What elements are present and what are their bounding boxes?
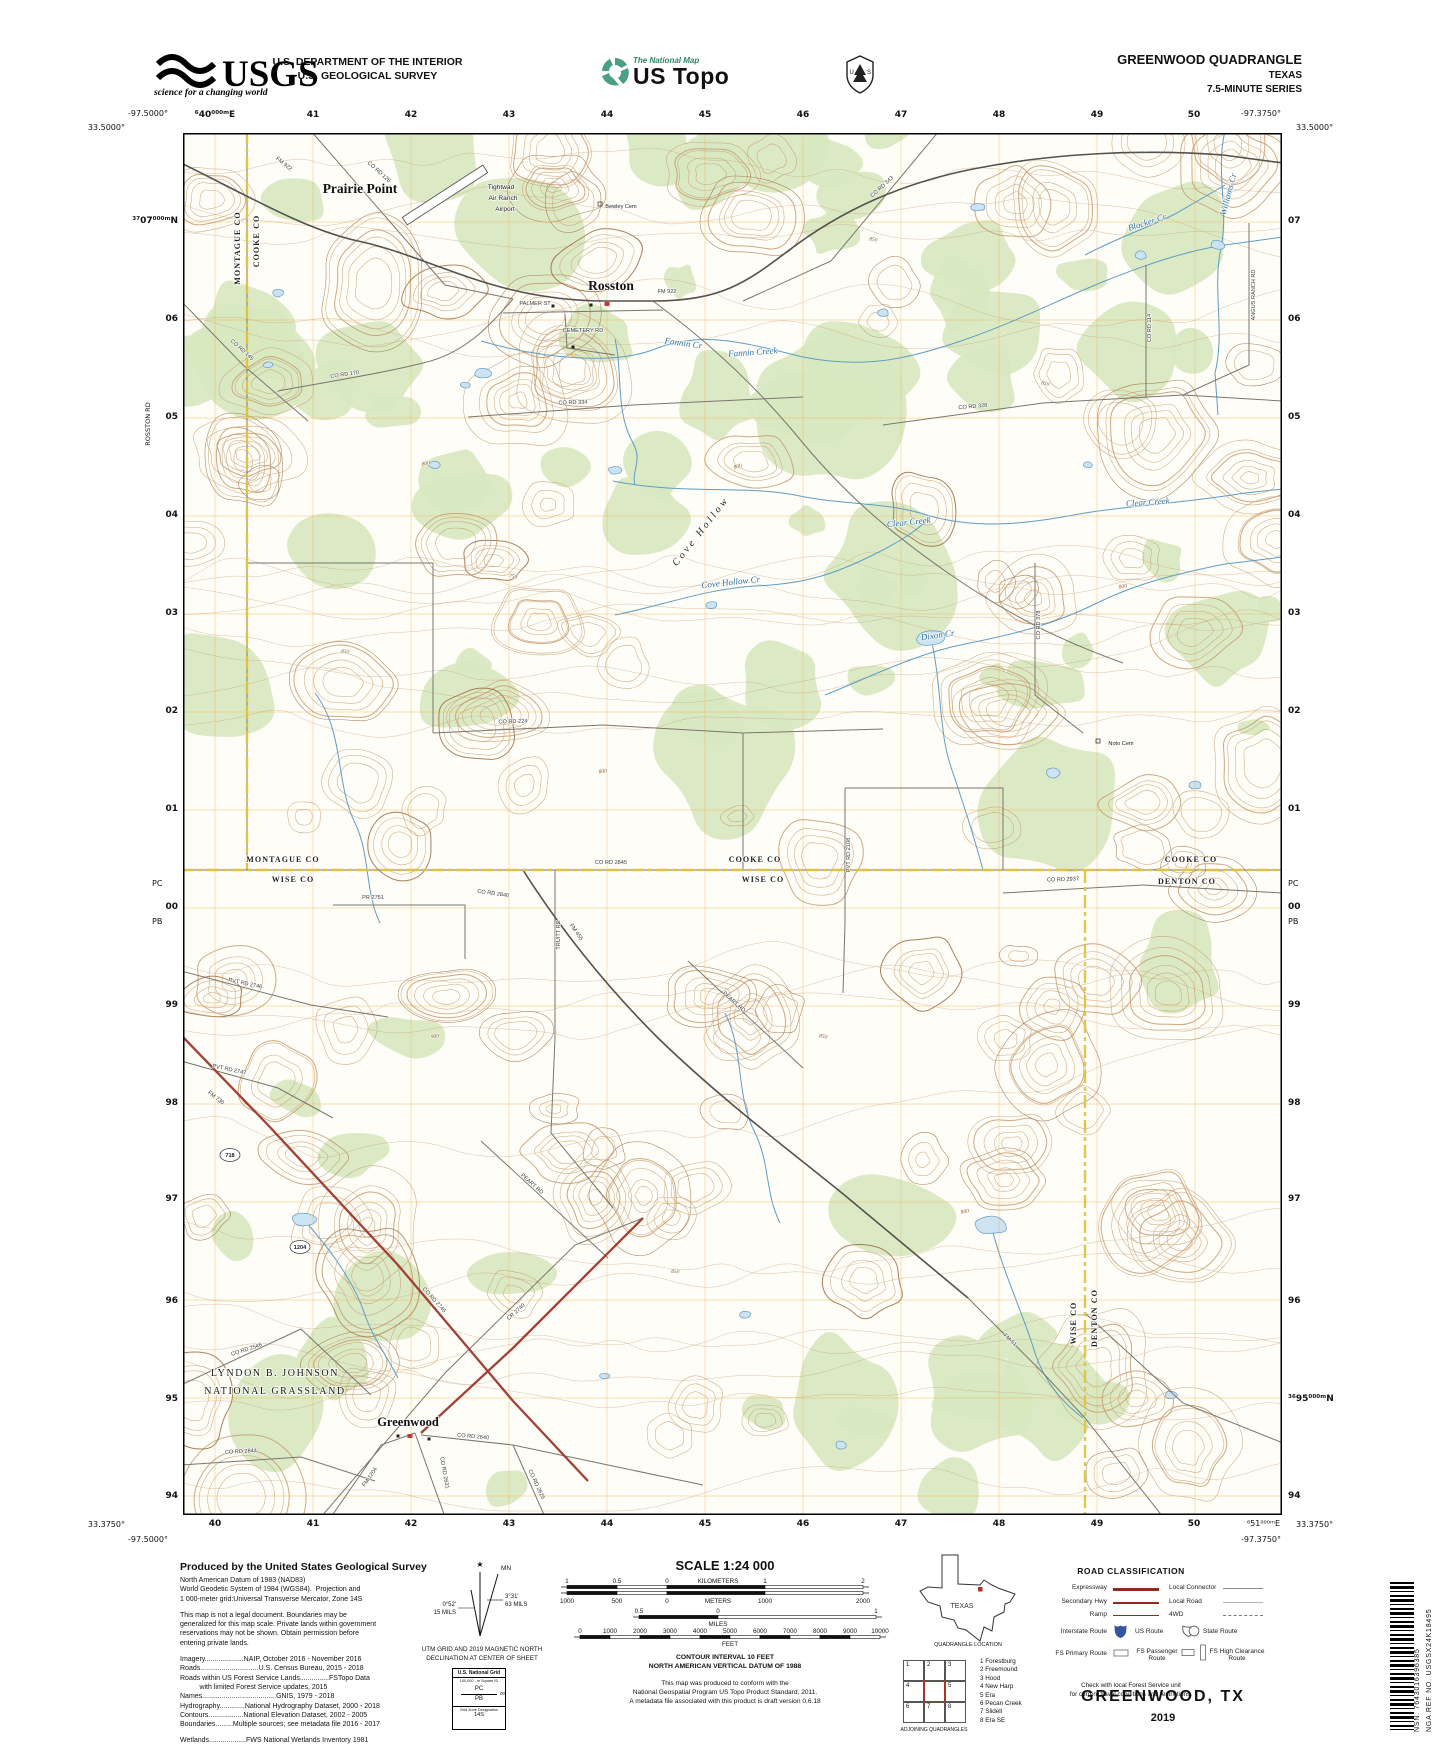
scale-tick-label: 4000 <box>693 1628 708 1635</box>
scale-tick-label: 1 <box>874 1608 878 1615</box>
conformance-note: National Geospatial Program US Topo Prod… <box>528 1689 922 1696</box>
road-label: CO RD 378 <box>1036 611 1042 640</box>
natgrid-zone: 14S <box>453 1712 505 1718</box>
natgrid-square-id: PC <box>461 1685 497 1694</box>
pond <box>971 204 985 211</box>
cemetery-label: Bewley Cem <box>605 204 637 210</box>
grid-easting-label: 50 <box>1188 110 1201 120</box>
department-heading: U.S. DEPARTMENT OF THE INTERIOR U.S. GEO… <box>255 55 480 83</box>
grid-northing-label: 06 <box>1288 314 1301 324</box>
site-label: Airport <box>495 206 515 213</box>
building-symbol <box>552 305 555 308</box>
contour-elevation-label: 900 <box>430 1034 439 1041</box>
scale-tick-label: 0 <box>716 1608 720 1615</box>
scale-tick-label: 1000 <box>603 1628 618 1635</box>
grid-easting-label: 47 <box>895 110 908 120</box>
grid-declination-mils: 15 MILS <box>434 1610 456 1616</box>
natgrid-subtitle: 100,000 - m Square ID <box>453 1678 505 1683</box>
scale-tick-label: 1 <box>565 1578 569 1585</box>
grid-northing-label: ³⁷07⁰⁰⁰ᵐN <box>108 216 178 226</box>
county-label: DENTON CO <box>1090 1289 1099 1347</box>
route-shield-label: 1204 <box>294 1245 307 1251</box>
scale-bar-part <box>617 1591 667 1594</box>
grid-northing-label: 05 <box>1288 412 1301 422</box>
contour-elevation-label: 750 <box>509 573 518 580</box>
scale-unit-label: FEET <box>722 1641 738 1648</box>
scale-bar-part <box>610 1635 640 1638</box>
dept-line2: U.S. GEOLOGICAL SURVEY <box>255 69 480 83</box>
scale-tick-label: 9000 <box>843 1628 858 1635</box>
corner-latitude: 33.3750° <box>62 1520 125 1529</box>
grid-easting-label: 49 <box>1091 110 1104 120</box>
corner-latitude: 33.3750° <box>1296 1520 1333 1529</box>
us-topo-title: US Topo <box>633 65 729 88</box>
credit-line: Hydrography.............National Hydrogr… <box>180 1702 452 1711</box>
building-symbol <box>572 346 575 349</box>
scale-tick-label: 2000 <box>633 1628 648 1635</box>
adjoining-quad-cell: 5 <box>945 1681 966 1702</box>
current-quad-cell <box>924 1681 945 1702</box>
corner-longitude: -97.5000° <box>128 109 168 118</box>
adjoining-quad-cell: 8 <box>945 1702 966 1723</box>
scale-bar-part <box>718 1615 876 1618</box>
road-classification-legend: ROAD CLASSIFICATION Check with local For… <box>995 1560 1267 1735</box>
adjoining-quad-cell: 1 <box>903 1660 924 1681</box>
map-sheet-year: 2019 <box>1028 1712 1298 1724</box>
scale-bar-part <box>580 1635 610 1638</box>
legend-label: Local Road <box>1169 1598 1221 1605</box>
usgs-topo-sheet: USGS science for a changing world U.S. D… <box>0 0 1445 1746</box>
grid-easting-label: 49 <box>1091 1519 1104 1529</box>
legend-line-sample <box>1223 1602 1263 1603</box>
county-label: WISE CO <box>742 875 785 884</box>
grid-easting-label: 41 <box>307 1519 320 1529</box>
grid-easting-label: 48 <box>993 1519 1006 1529</box>
pond <box>740 1311 751 1318</box>
scale-tick-label: 1000 <box>758 1598 773 1605</box>
grid-northing-label: 97 <box>1288 1194 1301 1204</box>
grid-northing-label: 02 <box>108 706 178 716</box>
legend-line-sample <box>1113 1588 1159 1591</box>
legend-label: Secondary Hwy <box>995 1598 1107 1605</box>
legend-label: Expressway <box>995 1584 1107 1591</box>
pond <box>1135 251 1146 259</box>
scale-bar-part <box>790 1635 820 1638</box>
grid-northing-label: 04 <box>1288 510 1301 520</box>
road-label: CO RD 334 <box>558 399 587 406</box>
road-classification-title: ROAD CLASSIFICATION <box>995 1566 1267 1576</box>
grid-declination-degrees: 0°52' <box>442 1602 456 1608</box>
scale-bar-part <box>820 1635 850 1638</box>
grid-northing-label: 99 <box>108 1000 178 1010</box>
legend-label: FS Primary Route <box>1025 1650 1107 1657</box>
magnetic-north-label: MN <box>501 1565 511 1572</box>
grid-northing-label: 97 <box>108 1194 178 1204</box>
legend-label: Ramp <box>995 1611 1107 1618</box>
legend-label: US Route <box>1135 1628 1175 1635</box>
scale-title: SCALE 1:24 000 <box>560 1558 890 1573</box>
vertical-datum: NORTH AMERICAN VERTICAL DATUM OF 1988 <box>558 1663 892 1670</box>
corner-longitude: -97.3750° <box>1225 1535 1281 1544</box>
scale-tick-label: 0.5 <box>635 1608 644 1615</box>
grid-northing-label: 98 <box>108 1098 178 1108</box>
grid-square-label: PC <box>1288 879 1298 888</box>
grid-northing-label: 04 <box>108 510 178 520</box>
declination-caption: DECLINATION AT CENTER OF SHEET <box>392 1655 572 1662</box>
adjoining-quadrangle-grid: 12345678 <box>903 1660 966 1723</box>
margin-road-label: ROSSTON RD <box>144 384 152 464</box>
area-label: NATIONAL GRASSLAND <box>204 1386 346 1397</box>
pond <box>600 1373 610 1378</box>
quad-location-marker <box>978 1587 983 1592</box>
county-label: COOKE CO <box>729 855 782 864</box>
scale-bar-part <box>640 1635 670 1638</box>
grid-easting-label: 43 <box>503 110 516 120</box>
area-label: LYNDON B. JOHNSON <box>211 1368 339 1379</box>
map-content: 7181204Prairie PointRosstonGreenwoodLYND… <box>183 133 1282 1515</box>
scale-unit-label: METERS <box>705 1598 731 1605</box>
us-national-grid-box: U.S. National Grid 100,000 - m Square ID… <box>452 1668 506 1730</box>
pond <box>608 466 622 474</box>
contour-elevation-label: 800 <box>960 1208 969 1215</box>
grid-northing-label: ³⁶95⁰⁰⁰ᵐN <box>1288 1394 1334 1404</box>
natgrid-title: U.S. National Grid <box>453 1669 505 1678</box>
fs-high-clearance-route-icon <box>1199 1644 1207 1663</box>
adjoining-quadrangles-caption: ADJOINING QUADRANGLES <box>878 1727 990 1733</box>
grid-northing-label: 01 <box>1288 804 1301 814</box>
grid-northing-label: 06 <box>108 314 178 324</box>
true-north-star-icon: ★ <box>476 1560 483 1569</box>
contour-elevation-label: 850 <box>341 649 350 656</box>
magnetic-declination-mils: 63 MILS <box>505 1602 527 1608</box>
conformance-note: This map was produced to conform with th… <box>528 1680 922 1687</box>
scale-bar-part <box>667 1591 765 1594</box>
adjoining-quad-cell: 2 <box>924 1660 945 1681</box>
state-route-circle-icon <box>1188 1625 1200 1639</box>
credit-line: reservations may not be shown. Obtain pe… <box>180 1629 452 1638</box>
credit-line: Names...................................… <box>180 1692 452 1701</box>
grid-easting-label: ⁶51⁰⁰⁰ᵐE <box>1180 1519 1280 1528</box>
contour-elevation-label: 800 <box>1118 583 1127 590</box>
map-sheet-name: GREENWOOD, TX <box>1028 1688 1298 1706</box>
credit-line: Wetlands...................FWS National … <box>180 1736 452 1745</box>
scale-tick-label: 0 <box>665 1578 669 1585</box>
scale-tick-label: 0 <box>665 1598 669 1605</box>
credit-line: Contours..................National Eleva… <box>180 1711 452 1720</box>
declination-diagram: ★ MN 0°52' 15 MILS 3°31' 63 MILS <box>425 1556 535 1642</box>
scale-bar-part <box>670 1635 700 1638</box>
grid-easting-label: 42 <box>405 1519 418 1529</box>
quad-name: GREENWOOD QUADRANGLE <box>990 52 1302 67</box>
grid-northing-label: 94 <box>108 1491 178 1501</box>
town-label: Greenwood <box>377 1415 439 1429</box>
natgrid-square-id: PB <box>461 1695 497 1704</box>
scale-bar-part <box>850 1635 880 1638</box>
pond <box>475 368 492 378</box>
interstate-shield-icon <box>1113 1624 1128 1641</box>
credit-line: Produced by the United States Geological… <box>180 1560 452 1574</box>
scale-tick-label: 0 <box>578 1628 582 1635</box>
scale-bar-part <box>700 1635 730 1638</box>
credit-line: with limited Forest Service updates, 201… <box>180 1683 452 1692</box>
grid-northing-label: 00 <box>108 902 178 912</box>
grid-northing-label: 00 <box>1288 902 1301 912</box>
road-label: CO RD 224 <box>498 718 527 725</box>
scale-tick-label: 5000 <box>723 1628 738 1635</box>
corner-latitude: 33.5000° <box>62 123 125 132</box>
state-label: TEXAS <box>951 1603 974 1610</box>
grid-easting-label: 45 <box>699 110 712 120</box>
credit-line: This map is not a legal document. Bounda… <box>180 1611 452 1620</box>
grid-easting-label: 48 <box>993 110 1006 120</box>
scale-bar-part <box>765 1585 863 1588</box>
conformance-note: A metadata file associated with this pro… <box>528 1698 922 1705</box>
credit-line: Roads..............................U.S. … <box>180 1664 452 1673</box>
usgs-tagline: science for a changing world <box>154 88 267 98</box>
road-label: PR 2751 <box>362 895 384 901</box>
scale-tick-label: 7000 <box>783 1628 798 1635</box>
scale-tick-label: 2 <box>861 1578 865 1585</box>
quad-state: TEXAS <box>990 70 1302 81</box>
barcode <box>1390 1582 1414 1730</box>
pond <box>706 602 717 609</box>
legend-line-sample <box>1223 1588 1263 1589</box>
grid-northing-label: 07 <box>1288 216 1301 226</box>
adjoining-quad-cell: 4 <box>903 1681 924 1702</box>
legend-label: 4WD <box>1169 1611 1221 1618</box>
fs-passenger-route-icon <box>1181 1648 1195 1659</box>
credit-line: World Geodetic System of 1984 (WGS84). P… <box>180 1585 452 1594</box>
grid-square-label: PC <box>152 879 162 888</box>
scale-tick-label: 2000 <box>856 1598 871 1605</box>
national-map-logo: The National Map US Topo <box>597 54 767 90</box>
building-symbol <box>428 1438 431 1441</box>
grid-easting-label: 46 <box>797 1519 810 1529</box>
fs-badge-letter: S <box>867 70 871 76</box>
legend-label: State Route <box>1203 1628 1253 1635</box>
topo-map: 7181204Prairie PointRosstonGreenwoodLYND… <box>183 133 1282 1515</box>
county-label: DENTON CO <box>1158 877 1216 886</box>
national-map-icon <box>597 54 633 90</box>
legend-label: FS Passenger Route <box>1135 1648 1179 1663</box>
building-symbol <box>397 1435 400 1438</box>
road-label: CO RD 2937 <box>1047 876 1079 883</box>
dept-line1: U.S. DEPARTMENT OF THE INTERIOR <box>255 55 480 69</box>
grid-northing-label: 05 <box>108 412 178 422</box>
grid-northing-label: 95 <box>108 1394 178 1404</box>
scale-bar-part <box>730 1635 760 1638</box>
county-label: COOKE CO <box>1165 855 1218 864</box>
credit-line: Roads within US Forest Service Lands....… <box>180 1674 452 1683</box>
credit-line: 1 000-meter grid:Universal Transverse Me… <box>180 1595 452 1604</box>
building-symbol <box>605 302 610 306</box>
grid-square-label: PB <box>152 917 162 926</box>
grid-easting-label: 45 <box>699 1519 712 1529</box>
county-label: MONTAGUE CO <box>246 855 320 864</box>
grid-easting-label: 42 <box>405 110 418 120</box>
grid-northing-label: 03 <box>108 608 178 618</box>
scale-bar-part <box>667 1585 765 1588</box>
credit-line: Boundaries.........Multiple sources; see… <box>180 1720 452 1729</box>
scale-tick-label: 0.5 <box>613 1578 622 1585</box>
quad-series: 7.5-MINUTE SERIES <box>990 84 1302 95</box>
scale-bar-part <box>639 1615 718 1618</box>
scale-tick-label: 1 <box>763 1578 767 1585</box>
county-label: WISE CO <box>1069 1302 1078 1345</box>
grid-northing-label: 94 <box>1288 1491 1301 1501</box>
grid-easting-label: 47 <box>895 1519 908 1529</box>
magnetic-declination-degrees: 3°31' <box>505 1594 519 1600</box>
site-label: Tightwad <box>488 184 515 191</box>
legend-label: Interstate Route <box>1025 1628 1107 1635</box>
scale-tick-label: 8000 <box>813 1628 828 1635</box>
grid-easting-label: 44 <box>601 110 614 120</box>
road-label: ANGUS RANCH RD <box>1251 270 1257 321</box>
adjoining-quad-cell: 3 <box>945 1660 966 1681</box>
county-label: COOKE CO <box>252 215 261 268</box>
road-label: CO RD 114 <box>1147 314 1153 343</box>
scale-tick-label: 500 <box>612 1598 623 1605</box>
grid-easting-label: 43 <box>503 1519 516 1529</box>
state-route-circle-icon <box>1191 1640 1192 1647</box>
road-label: PALMER ST <box>519 301 551 307</box>
building-symbol <box>590 304 593 307</box>
pond <box>429 461 440 468</box>
road-label: CO RD 2845 <box>595 860 627 866</box>
adjoining-quad-cell: 7 <box>924 1702 945 1723</box>
fs-badge-letter: U <box>850 70 854 76</box>
corner-latitude: 33.5000° <box>1296 123 1333 132</box>
contour-interval: CONTOUR INTERVAL 10 FEET <box>558 1654 892 1661</box>
scale-bar-part <box>567 1591 617 1594</box>
road-label: CEMETERY RD <box>563 328 604 334</box>
contour-elevation-label: 850 <box>671 1269 680 1276</box>
county-label: MONTAGUE CO <box>233 211 242 285</box>
road-label: PVT RD 2108 <box>846 838 852 872</box>
grid-northing-label: 02 <box>1288 706 1301 716</box>
adjoining-quad-cell: 6 <box>903 1702 924 1723</box>
scale-unit-label: MILES <box>709 1621 728 1628</box>
credit-line: generalized for this map scale. Private … <box>180 1620 452 1629</box>
scale-tick-label: 1000 <box>560 1598 575 1605</box>
scale-bar-part <box>617 1585 667 1588</box>
legend-line-sample <box>1113 1602 1159 1604</box>
grid-easting-label: 46 <box>797 110 810 120</box>
declination-caption: UTM GRID AND 2019 MAGNETIC NORTH <box>392 1646 572 1653</box>
nga-ref-number: NGA REF NO. USGSX24K18495 <box>1426 1556 1433 1732</box>
forest-service-badge: U S <box>845 55 875 95</box>
grid-northing-label: 03 <box>1288 608 1301 618</box>
fs-primary-route-icon <box>1113 1648 1129 1660</box>
scale-bar-part <box>567 1585 617 1588</box>
grid-easting-label: 44 <box>601 1519 614 1529</box>
grid-easting-label: 41 <box>307 110 320 120</box>
cemetery-label: Noto Cem <box>1108 741 1134 747</box>
legend-label: Local Connector <box>1169 1584 1221 1591</box>
natgrid-corner: 00 <box>500 1691 505 1696</box>
contour-elevation-label: 850 <box>819 1033 828 1040</box>
grid-northing-label: 98 <box>1288 1098 1301 1108</box>
corner-longitude: -97.3750° <box>1225 109 1281 118</box>
grid-easting-label: 40 <box>209 1519 222 1529</box>
building-symbol <box>408 1434 413 1438</box>
town-label: Rosston <box>588 278 634 293</box>
scale-bar-part <box>760 1635 790 1638</box>
legend-line-sample <box>1223 1615 1263 1616</box>
grid-northing-label: 96 <box>108 1296 178 1306</box>
site-label: Air Ranch <box>489 195 518 202</box>
road-label: FM 922 <box>658 289 677 295</box>
corner-longitude: -97.5000° <box>128 1535 168 1544</box>
contour-elevation-label: 850 <box>869 236 878 243</box>
scale-tick-label: 3000 <box>663 1628 678 1635</box>
scale-tick-label: 10000 <box>871 1628 889 1635</box>
grid-northing-label: 99 <box>1288 1000 1301 1010</box>
quad-title-block: GREENWOOD QUADRANGLE TEXAS 7.5-MINUTE SE… <box>990 52 1302 95</box>
legend-label: FS High Clearance Route <box>1209 1648 1265 1663</box>
grid-easting-label: ⁶40⁰⁰⁰ᵐE <box>195 110 235 120</box>
legend-line-sample <box>1113 1615 1159 1616</box>
credit-line: North American Datum of 1983 (NAD83) <box>180 1576 452 1585</box>
route-shield-label: 718 <box>225 1153 234 1159</box>
scale-bar-part <box>765 1591 863 1594</box>
contour-elevation-label: 800 <box>598 769 607 776</box>
scale-unit-label: KILOMETERS <box>698 1578 739 1585</box>
grid-square-label: PB <box>1288 917 1298 926</box>
nsn-number: NSN. 7643016396385 <box>1414 1556 1421 1732</box>
grid-northing-label: 01 <box>108 804 178 814</box>
scale-tick-label: 6000 <box>753 1628 768 1635</box>
grid-northing-label: 96 <box>1288 1296 1301 1306</box>
county-label: WISE CO <box>272 875 315 884</box>
road-label: TRUITT RD <box>556 920 562 949</box>
